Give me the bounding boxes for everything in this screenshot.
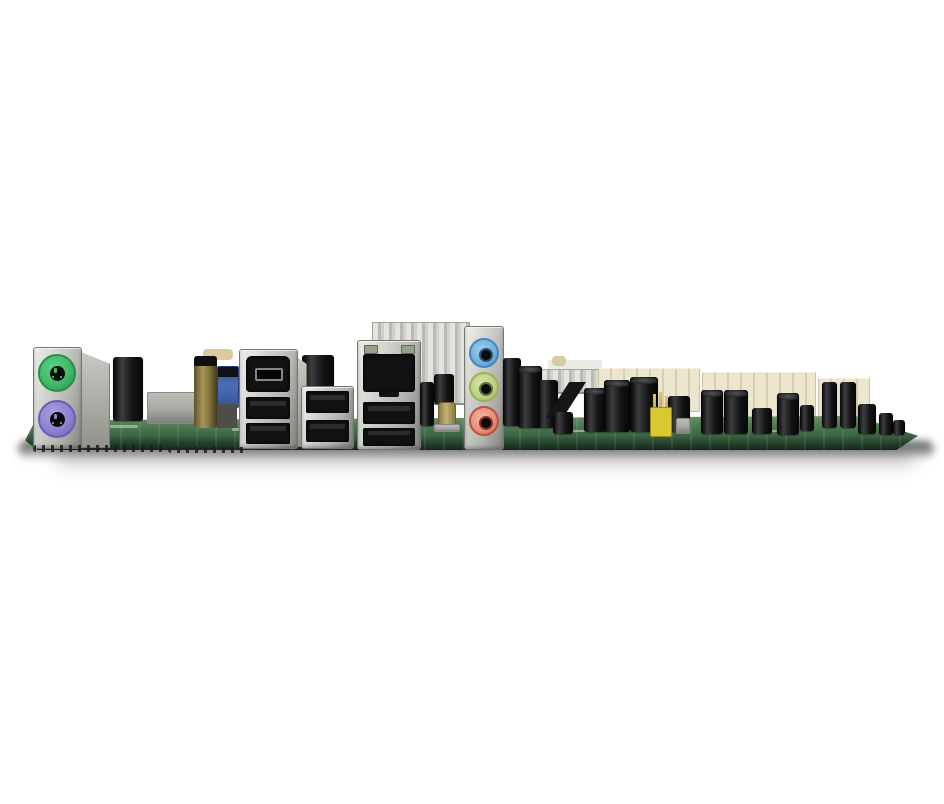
gold-capacitor [194, 356, 217, 428]
capacitor-tall-left [113, 357, 143, 421]
pin-header-block [822, 382, 837, 428]
usb-port-1 [246, 397, 290, 419]
capacitor-small [858, 404, 876, 434]
usb-dual-stack [301, 386, 354, 449]
usb-port-2 [246, 423, 290, 444]
crystal-base [434, 424, 460, 432]
ps2-keyboard-port [38, 400, 76, 438]
line-in-jack [469, 338, 499, 368]
mic-in-hole [479, 416, 493, 430]
mic-in-jack [469, 406, 499, 436]
usb-port-6 [363, 428, 415, 446]
capacitor-small [893, 420, 905, 435]
small-bracket [676, 418, 690, 434]
capacitor-small [434, 374, 454, 404]
ps2-mouse-hole [50, 366, 65, 381]
capacitor-small [800, 405, 814, 431]
solder-joints [33, 445, 163, 452]
line-out-jack [469, 372, 499, 402]
ps2-pin [54, 368, 57, 373]
firewire-port [246, 356, 290, 392]
usb-port-3 [306, 391, 349, 413]
usb-port-4 [306, 420, 349, 442]
ps2-keyboard-hole [50, 412, 65, 427]
usb-port-5 [363, 402, 415, 424]
firewire-slot [255, 368, 283, 381]
line-in-hole [479, 348, 493, 362]
ethernet-led-right [401, 345, 415, 354]
blue-header-connector [217, 366, 239, 408]
ps2-pin [54, 414, 57, 419]
solder-joints [168, 447, 248, 453]
motherboard-side-photo [0, 0, 944, 804]
ethernet-tab [379, 391, 399, 397]
ps2-pin [52, 376, 54, 378]
firewire-usb-stack [239, 349, 298, 449]
capacitor [724, 390, 748, 434]
pin-header-block [840, 382, 856, 428]
capacitor-small [752, 408, 772, 434]
capacitor [604, 380, 630, 432]
capacitor-small [420, 382, 434, 426]
ps2-pin [60, 422, 62, 424]
line-out-hole [479, 382, 493, 396]
ps2-mouse-port [38, 354, 76, 392]
ps2-pin [60, 376, 62, 378]
capacitor-small [879, 413, 893, 435]
capacitor [777, 393, 799, 435]
ethernet-led-left [364, 345, 378, 354]
connector-base [217, 404, 237, 428]
yellow-jumper [650, 407, 672, 437]
capacitor [584, 388, 606, 432]
audio-jack-stack [464, 326, 504, 450]
tan-component [552, 356, 566, 366]
capacitor [701, 390, 723, 434]
ethernet-usb-stack [357, 340, 421, 450]
capacitor [553, 412, 573, 434]
ps2-stack [33, 347, 82, 449]
ps2-pin [52, 422, 54, 424]
ethernet-port [363, 354, 415, 392]
